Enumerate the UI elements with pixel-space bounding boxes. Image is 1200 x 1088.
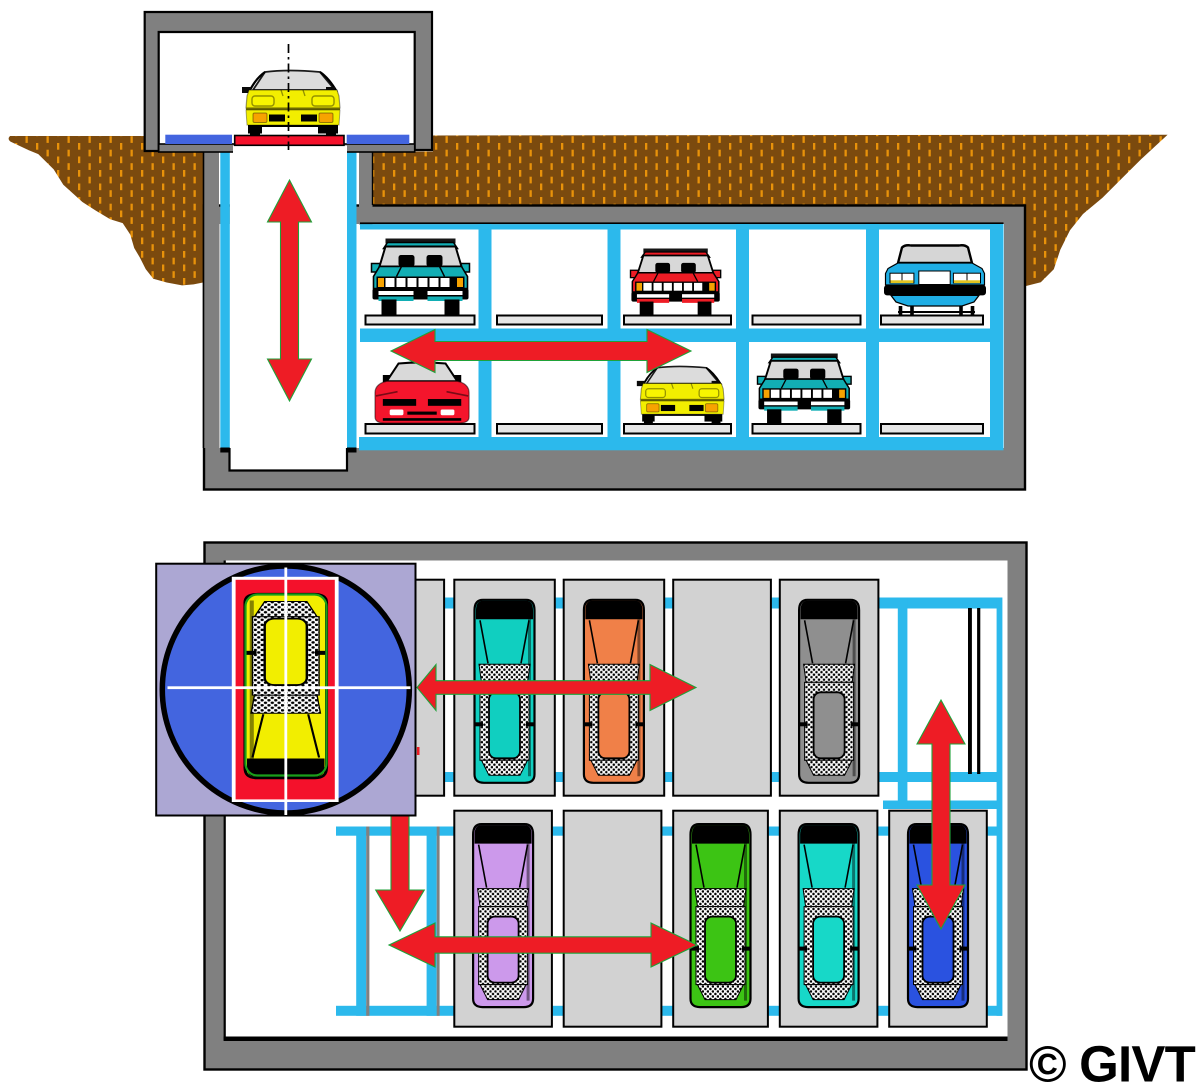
svg-text:© GIVT: © GIVT (1029, 1036, 1196, 1088)
